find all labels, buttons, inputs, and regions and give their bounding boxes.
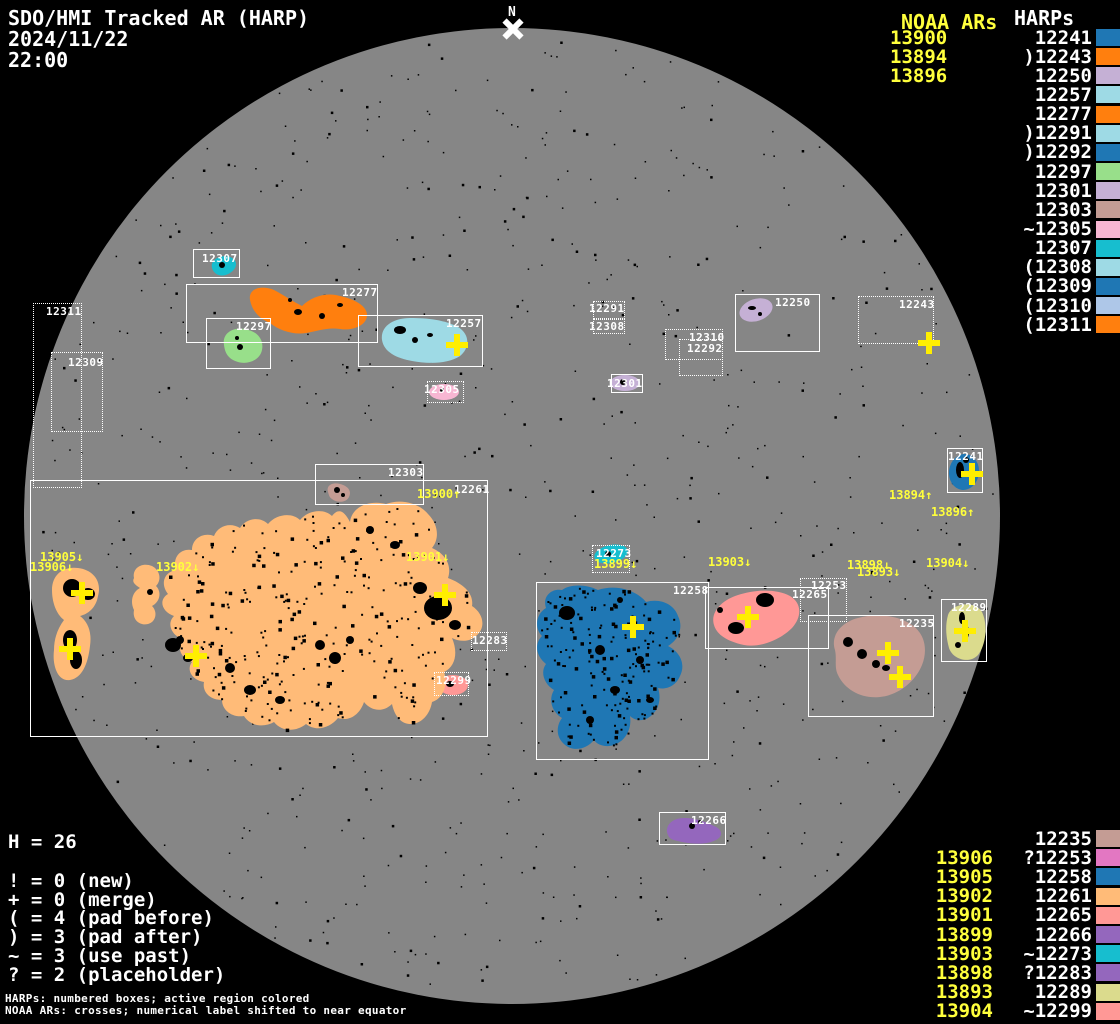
harp-box-label: 12299 [436,675,472,686]
harp-list-row: 12303 [890,200,1120,219]
harp-list-row: 13903~12273 [890,944,1120,963]
harp-box-label: 12257 [446,318,482,329]
harp-id: 12311 [1035,314,1092,336]
harp-list-row: 13894)12243 [890,47,1120,66]
harp-box-label: 12283 [472,635,508,646]
harp-list-row: 13906?12253 [890,848,1120,867]
harp-list-row: 13898?12283 [890,963,1120,982]
noaa-ar-cross-icon [622,616,644,638]
harp-color-swatch [1096,297,1120,314]
noaa-ar-label: 13899↓ [594,558,637,570]
noaa-ar-cross-icon [737,606,759,628]
harp-color-swatch [1096,945,1120,962]
harp-list-row: 13904~12299 [890,1002,1120,1021]
noaa-ar-cross-icon [185,645,207,667]
noaa-ar-label: 13900↑ [417,488,460,500]
noaa-ar-label: 13906↓ [30,561,73,573]
harp-box-label: 12309 [68,357,104,368]
harp-list-row: (12308 [890,258,1120,277]
harp-box-label: 12241 [948,451,984,462]
harp-color-swatch [1096,144,1120,161]
harp-box-label: 12250 [775,297,811,308]
noaa-ar-label: 13894↑ [889,489,932,501]
harp-list-row: )12291 [890,124,1120,143]
noaa-ar-cross-icon [918,332,940,354]
noaa-ar-cross-icon [434,584,456,606]
harp-color-swatch [1096,868,1120,885]
harp-box-12261 [30,480,488,737]
harp-color-swatch [1096,201,1120,218]
noaa-ar-label: 13903↓ [708,556,751,568]
noaa-ar-label: 13901↓ [406,551,449,563]
noaa-ar-cross-icon [954,620,976,642]
harp-id: 12299 [1035,1000,1092,1022]
harp-color-swatch [1096,125,1120,142]
noaa-ar-cross-icon [71,582,93,604]
noaa-ar-cross-icon [961,463,983,485]
harp-color-swatch [1096,221,1120,238]
harp-color-swatch [1096,278,1120,295]
harp-prefix: ~ [1023,1000,1034,1022]
harp-list-row: 1389912266 [890,925,1120,944]
harp-box-label: 12277 [342,287,378,298]
harp-list-row: (12311 [890,315,1120,334]
harp-color-swatch [1096,907,1120,924]
harp-list-row: 1390112265 [890,906,1120,925]
harp-color-swatch [1096,48,1120,65]
harp-list-row: 1390512258 [890,867,1120,886]
harp-box-12258 [536,582,709,760]
harp-list-row: 1389312289 [890,983,1120,1002]
harp-box-label: 12292 [687,343,723,354]
noaa-ar-label: 13902↓ [156,561,199,573]
harps-header: HARPs [1014,8,1074,28]
harp-number: (12311 [998,314,1092,336]
harp-list-row: 12301 [890,181,1120,200]
harp-color-swatch [1096,830,1120,847]
noaa-ar-label: 13893↓ [857,566,900,578]
harp-color-swatch [1096,316,1120,333]
harp-box-label: 12301 [607,378,643,389]
harp-list-row: 12277 [890,105,1120,124]
harp-color-swatch [1096,240,1120,257]
harp-list-row: 1389612250 [890,66,1120,85]
harp-box-label: 12308 [589,321,625,332]
noaa-number: 13896 [890,65,998,87]
harp-list-row: 1390012241 [890,28,1120,47]
harp-box-label: 12235 [899,618,935,629]
harp-color-swatch [1096,29,1120,46]
harp-box-label: 12303 [388,467,424,478]
harp-box-label: 12311 [46,306,82,317]
harp-list-row: (12309 [890,277,1120,296]
harp-box-label: 12305 [424,384,460,395]
harp-box-12235 [808,615,934,717]
harp-color-swatch [1096,888,1120,905]
noaa-ar-cross-icon [446,334,468,356]
harp-color-swatch [1096,106,1120,123]
harp-list-row: (12310 [890,296,1120,315]
noaa-ar-cross-icon [59,638,81,660]
harp-color-swatch [1096,984,1120,1001]
harp-color-swatch [1096,182,1120,199]
harp-color-swatch [1096,259,1120,276]
noaa-ar-cross-icon [889,666,911,688]
harp-color-swatch [1096,1003,1120,1020]
harp-map: SDO/HMI Tracked AR (HARP)2024/11/2222:00… [0,0,1120,1024]
harp-list-row: 12257 [890,85,1120,104]
noaa-number: 13904 [890,1000,993,1022]
harp-list-row: )12292 [890,143,1120,162]
harp-box-label: 12307 [202,253,238,264]
noaa-ar-label: 13896↑ [931,506,974,518]
harp-list-row: 1390212261 [890,887,1120,906]
noaa-ar-cross-icon [877,642,899,664]
harp-box-label: 12297 [236,321,272,332]
harp-box-label: 12266 [691,815,727,826]
harp-color-swatch [1096,849,1120,866]
harp-number: ~12299 [993,1000,1092,1022]
harp-box-label: 12258 [673,585,709,596]
harp-color-swatch [1096,67,1120,84]
harp-list-row: 12307 [890,239,1120,258]
north-cross-icon [502,18,524,40]
harp-prefix: ( [1023,314,1034,336]
harp-box-label: 12265 [792,589,828,600]
harp-list-row: ~12305 [890,220,1120,239]
harp-box-label: 12289 [951,602,987,613]
harp-color-swatch [1096,926,1120,943]
noaa-ar-label: 13904↓ [926,557,969,569]
harp-list-row: 12297 [890,162,1120,181]
harp-list-row: 12235 [890,829,1120,848]
harp-box-label: 12291 [589,303,625,314]
harp-color-swatch [1096,964,1120,981]
harp-color-swatch [1096,86,1120,103]
harp-color-swatch [1096,163,1120,180]
